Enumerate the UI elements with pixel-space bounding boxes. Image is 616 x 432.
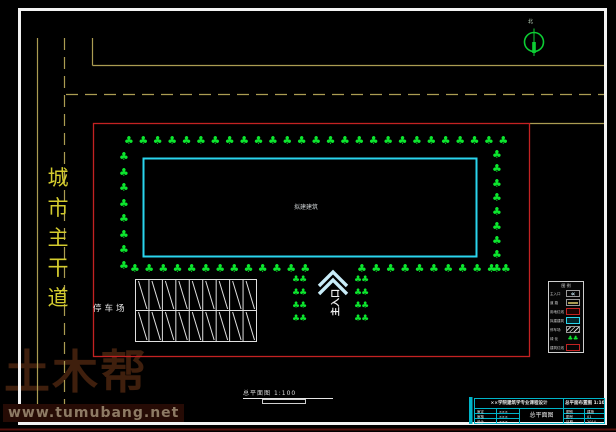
tree-icon: ♣	[501, 264, 511, 274]
titleblock-header-left: ××学院建筑学专业课程设计	[476, 400, 562, 406]
watermark-url: www.tumubang.net	[3, 404, 184, 422]
drawing-linework	[0, 0, 616, 432]
tree-icon: ♣	[400, 264, 410, 274]
tree-icon: ♣	[268, 136, 278, 146]
tree-icon: ♣	[443, 264, 453, 274]
titleblock-cell-label: 日期	[566, 420, 586, 425]
titleblock-cell-label: 图别	[566, 410, 586, 415]
tree-icon: ♣	[441, 136, 451, 146]
tree-icon: ♣	[492, 164, 502, 174]
legend-title: 图 例	[549, 282, 583, 289]
tree-icon: ♣	[158, 264, 168, 274]
tree-icon: ♣	[311, 136, 321, 146]
tree-icon: ♣	[119, 230, 129, 240]
titleblock-cell-label: 审核	[477, 415, 497, 420]
tree-icon: ♣	[119, 214, 129, 224]
tree-icon: ♣	[492, 236, 502, 246]
shrub-icon: ♣♣	[292, 276, 306, 285]
road-name-label: 城市主干道	[45, 163, 71, 313]
tree-icon: ♣	[487, 264, 497, 274]
shrub-icon: ♣♣	[354, 302, 368, 311]
shrub-icon: ♣♣	[292, 302, 306, 311]
tree-icon: ♣	[210, 136, 220, 146]
tree-icon: ♣	[196, 136, 206, 146]
tree-icon: ♣	[426, 136, 436, 146]
tree-icon: ♣	[412, 136, 422, 146]
tree-icon: ♣	[383, 136, 393, 146]
legend-row: 道 路	[549, 298, 583, 307]
north-label: 北	[528, 18, 533, 25]
tree-icon: ♣	[254, 136, 264, 146]
legend-row: 用地红线	[549, 307, 583, 316]
legend-symbol-building	[566, 317, 580, 324]
tree-icon: ♣	[297, 136, 307, 146]
shrub-icon: ♣♣	[354, 289, 368, 298]
tree-icon: ♣	[119, 245, 129, 255]
tree-icon: ♣	[119, 152, 129, 162]
tree-icon: ♣	[187, 264, 197, 274]
tree-icon: ♣	[244, 264, 254, 274]
legend-row: 主入口«	[549, 289, 583, 298]
tree-icon: ♣	[300, 264, 310, 274]
cad-site-plan-canvas: ♣♣♣♣♣♣♣♣♣♣♣♣♣♣♣♣♣♣♣♣♣♣♣♣♣♣♣♣♣♣♣♣♣♣♣♣♣♣♣♣…	[0, 0, 616, 432]
tree-icon: ♣	[415, 264, 425, 274]
tree-icon: ♣	[258, 264, 268, 274]
tree-icon: ♣	[215, 264, 225, 274]
entrance-label: 主入口	[329, 285, 340, 321]
tree-icon: ♣	[167, 136, 177, 146]
legend-row-label: 绿 化	[550, 337, 566, 341]
tree-icon: ♣	[182, 136, 192, 146]
legend-row: 建筑红线	[549, 343, 583, 352]
tree-icon: ♣	[272, 264, 282, 274]
titleblock-cell-value: 01	[587, 415, 607, 420]
legend-row-label: 用地红线	[550, 310, 566, 314]
tree-icon: ♣	[492, 222, 502, 232]
shrub-icon: ♣♣	[292, 315, 306, 324]
tree-icon: ♣	[492, 250, 502, 260]
tree-icon: ♣	[492, 207, 502, 217]
tree-icon: ♣	[130, 264, 140, 274]
legend-symbol-boundary	[566, 308, 580, 315]
titleblock-cell-label: 设计	[477, 420, 497, 425]
parking-label: 停车场	[93, 302, 128, 314]
tree-icon: ♣	[369, 136, 379, 146]
tree-icon: ♣	[119, 183, 129, 193]
titleblock-drawing-name: 总平面图	[520, 409, 563, 423]
titleblock-cell-value: ×××	[499, 420, 519, 425]
tree-icon: ♣	[119, 199, 129, 209]
sheet-frame	[20, 10, 606, 424]
legend-row-label: 道 路	[550, 301, 566, 305]
north-arrow-icon	[525, 29, 544, 57]
tree-icon: ♣	[371, 264, 381, 274]
tree-icon: ♣	[326, 136, 336, 146]
legend-row: 绿 化♣♣	[549, 334, 583, 343]
tree-icon: ♣	[398, 136, 408, 146]
tree-icon: ♣	[153, 136, 163, 146]
tree-icon: ♣	[119, 261, 129, 271]
legend-rows: 主入口«道 路用地红线拟建建筑停车场绿 化♣♣建筑红线	[549, 289, 583, 352]
tree-icon: ♣	[386, 264, 396, 274]
tree-icon: ♣	[119, 168, 129, 178]
legend-row-label: 建筑红线	[550, 346, 566, 350]
legend-box: 图 例 主入口«道 路用地红线拟建建筑停车场绿 化♣♣建筑红线	[548, 281, 584, 353]
title-box	[262, 399, 306, 404]
titleblock-cell-label: 审定	[477, 410, 497, 415]
tree-icon: ♣	[455, 136, 465, 146]
drawing-title: 总平面图	[243, 390, 271, 397]
legend-row: 拟建建筑	[549, 316, 583, 325]
shrub-icon: ♣♣	[354, 276, 368, 285]
legend-symbol-road	[566, 299, 580, 306]
tree-icon: ♣	[498, 136, 508, 146]
shrub-icon: ♣♣	[292, 289, 306, 298]
titleblock-header-right: 总平面布置图 1:100	[565, 400, 604, 406]
titleblock-cell-value: 2014	[587, 420, 607, 425]
tree-icon: ♣	[173, 264, 183, 274]
titleblock-cell-value: ×××	[499, 410, 519, 415]
tree-icon: ♣	[225, 136, 235, 146]
titleblock-cell-label: 图号	[566, 415, 586, 420]
tree-icon: ♣	[239, 136, 249, 146]
tree-icon: ♣	[144, 264, 154, 274]
tree-icon: ♣	[340, 136, 350, 146]
drawing-scale-note: 总平面图 1:100	[243, 388, 296, 397]
titleblock-cell-value: ×××	[499, 415, 519, 420]
legend-symbol-greenery: ♣♣	[566, 335, 580, 342]
tree-icon: ♣	[492, 179, 502, 189]
tree-icon: ♣	[458, 264, 468, 274]
tree-icon: ♣	[282, 136, 292, 146]
legend-symbol-parking	[566, 326, 580, 333]
tree-icon: ♣	[470, 136, 480, 146]
tree-icon: ♣	[484, 136, 494, 146]
parking-grid	[136, 280, 257, 342]
tree-icon: ♣	[201, 264, 211, 274]
tree-icon: ♣	[286, 264, 296, 274]
tree-icon: ♣	[229, 264, 239, 274]
titleblock-cell-value: 建施	[587, 410, 607, 415]
tree-icon: ♣	[357, 264, 367, 274]
legend-symbol-entrance: «	[566, 290, 580, 297]
tree-icon: ♣	[354, 136, 364, 146]
legend-row-label: 拟建建筑	[550, 319, 566, 323]
drawing-scale: 1:100	[274, 390, 296, 397]
legend-symbol-wall	[566, 344, 580, 351]
tree-icon: ♣	[472, 264, 482, 274]
legend-row-label: 停车场	[550, 328, 566, 332]
legend-row: 停车场	[549, 325, 583, 334]
shrub-icon: ♣♣	[354, 315, 368, 324]
tree-icon: ♣	[124, 136, 134, 146]
tree-icon: ♣	[492, 193, 502, 203]
tree-icon: ♣	[429, 264, 439, 274]
building-label: 拟建建筑	[278, 202, 334, 211]
tree-icon: ♣	[492, 150, 502, 160]
legend-row-label: 主入口	[550, 292, 566, 296]
tree-icon: ♣	[138, 136, 148, 146]
